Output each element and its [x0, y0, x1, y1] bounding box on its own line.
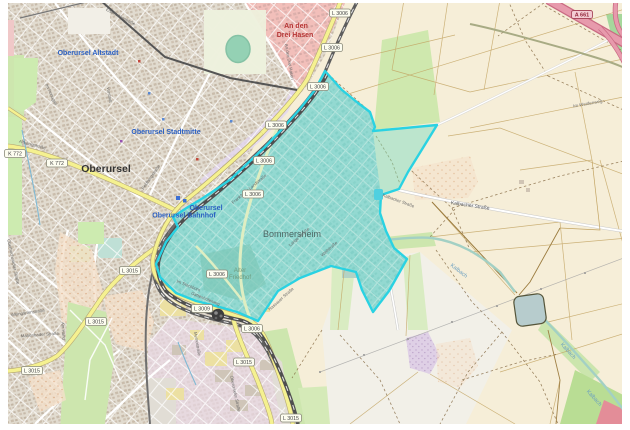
svg-text:Oberursel Stadtmitte: Oberursel Stadtmitte	[131, 129, 200, 136]
svg-text:L 3015: L 3015	[122, 269, 138, 275]
svg-text:Oberursel Altstadt: Oberursel Altstadt	[58, 50, 119, 57]
svg-text:A 661: A 661	[575, 13, 589, 19]
svg-text:L 3006: L 3006	[245, 192, 261, 198]
svg-text:L 3006: L 3006	[310, 85, 326, 91]
svg-text:L 3006: L 3006	[268, 123, 284, 129]
svg-text:L 3006: L 3006	[244, 327, 260, 333]
svg-text:L 3015: L 3015	[236, 360, 252, 366]
svg-text:Friedhof: Friedhof	[229, 275, 251, 281]
svg-text:L 3006: L 3006	[324, 46, 340, 52]
svg-text:L 3009: L 3009	[194, 307, 210, 313]
svg-text:Alter: Alter	[234, 268, 246, 274]
svg-text:L 3006: L 3006	[209, 272, 225, 278]
svg-text:Oberursel: Oberursel	[81, 163, 131, 175]
svg-text:An den: An den	[284, 23, 308, 30]
svg-text:K 772: K 772	[8, 152, 22, 158]
svg-text:L 3015: L 3015	[88, 320, 104, 326]
svg-text:L 3006: L 3006	[256, 159, 272, 165]
svg-text:Drei Hasen: Drei Hasen	[277, 32, 314, 39]
svg-text:L 3015: L 3015	[283, 416, 299, 422]
svg-text:Bommersheim: Bommersheim	[263, 229, 321, 239]
svg-text:L 3015: L 3015	[24, 369, 40, 375]
svg-text:Oberursel Bahnhof: Oberursel Bahnhof	[152, 213, 216, 220]
svg-text:L 3006: L 3006	[332, 11, 348, 17]
svg-text:Oberursel: Oberursel	[189, 205, 222, 212]
svg-text:K 772: K 772	[50, 161, 64, 167]
